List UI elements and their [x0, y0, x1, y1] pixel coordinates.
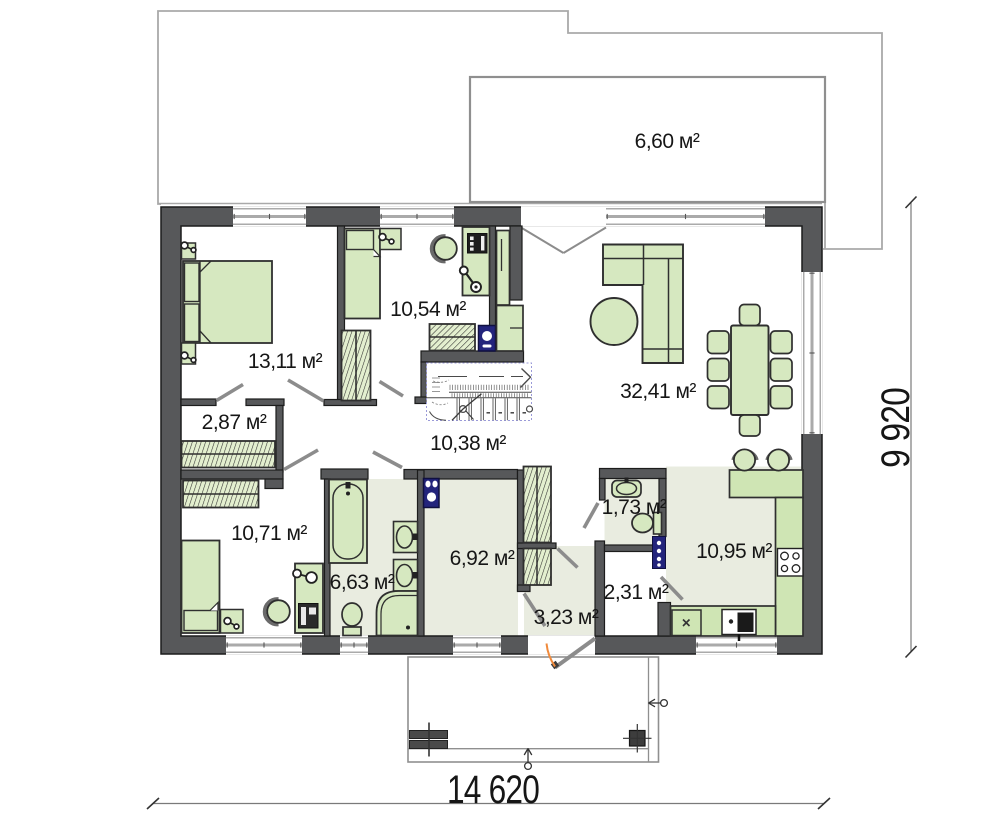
svg-text:1,73 м²: 1,73 м²	[602, 496, 667, 519]
svg-text:10,54 м²: 10,54 м²	[390, 298, 466, 321]
svg-text:10,71 м²: 10,71 м²	[231, 522, 307, 545]
svg-text:32,41 м²: 32,41 м²	[620, 380, 696, 403]
svg-text:6,63 м²: 6,63 м²	[330, 571, 395, 594]
svg-text:9 920: 9 920	[874, 388, 918, 468]
svg-text:3,23 м²: 3,23 м²	[534, 606, 599, 629]
svg-text:2,87 м²: 2,87 м²	[202, 411, 267, 434]
svg-text:14 620: 14 620	[447, 768, 539, 812]
svg-text:13,11 м²: 13,11 м²	[248, 350, 323, 373]
svg-text:10,38 м²: 10,38 м²	[430, 432, 506, 455]
svg-text:10,95 м²: 10,95 м²	[696, 540, 772, 563]
svg-text:6,92 м²: 6,92 м²	[450, 547, 515, 570]
svg-text:2,31 м²: 2,31 м²	[604, 581, 669, 604]
svg-text:6,60 м²: 6,60 м²	[635, 130, 700, 153]
